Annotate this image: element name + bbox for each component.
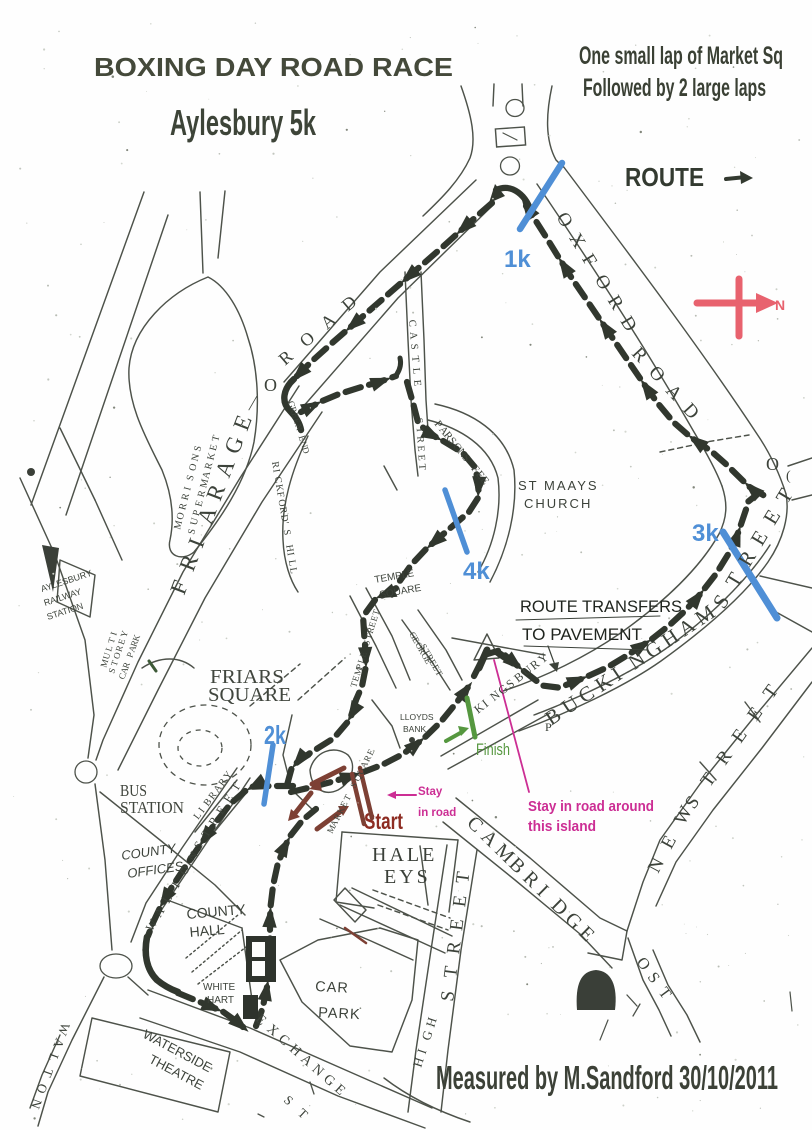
svg-text:Stay in road around: Stay in road around bbox=[528, 798, 654, 815]
svg-text:C: C bbox=[406, 319, 418, 327]
svg-text:A: A bbox=[407, 331, 419, 340]
svg-text:ROUTE TRANSFERS: ROUTE TRANSFERS bbox=[520, 597, 682, 616]
svg-text:O: O bbox=[264, 375, 277, 395]
svg-text:HALL: HALL bbox=[189, 921, 225, 940]
svg-text:SQUARE: SQUARE bbox=[208, 684, 291, 706]
svg-text:this island: this island bbox=[528, 818, 596, 835]
svg-text:O: O bbox=[766, 454, 779, 474]
svg-text:in road: in road bbox=[418, 807, 456, 819]
svg-text:Measured by M.Sandford 30/10/2: Measured by M.Sandford 30/10/2011 bbox=[436, 1059, 778, 1096]
svg-text:Followed by 2 large laps: Followed by 2 large laps bbox=[583, 74, 766, 102]
svg-text:CAR: CAR bbox=[315, 979, 349, 997]
svg-text:Finish: Finish bbox=[476, 740, 510, 759]
svg-text:WHITE: WHITE bbox=[203, 982, 236, 993]
svg-text:E: E bbox=[415, 445, 426, 452]
svg-text:N: N bbox=[775, 297, 785, 313]
svg-text:Aylesbury 5k: Aylesbury 5k bbox=[170, 102, 317, 143]
svg-text:PARK: PARK bbox=[318, 1005, 361, 1023]
svg-text:ROUTE: ROUTE bbox=[625, 162, 704, 192]
svg-text:3k: 3k bbox=[692, 520, 719, 547]
svg-text:T: T bbox=[414, 427, 425, 434]
svg-text:One small lap of Market Sq: One small lap of Market Sq bbox=[579, 42, 783, 70]
svg-text:LLOYDS: LLOYDS bbox=[400, 712, 434, 722]
svg-text:R: R bbox=[414, 436, 425, 444]
svg-text:STATION: STATION bbox=[120, 798, 184, 817]
svg-text:EYS: EYS bbox=[384, 866, 431, 888]
svg-text:E: E bbox=[415, 454, 426, 461]
svg-text:4k: 4k bbox=[463, 558, 490, 585]
svg-text:S: S bbox=[413, 417, 424, 423]
svg-text:HART: HART bbox=[207, 995, 234, 1006]
svg-text:BOXING DAY ROAD RACE: BOXING DAY ROAD RACE bbox=[94, 52, 453, 82]
svg-text:BANK: BANK bbox=[403, 724, 426, 734]
svg-text:HALE: HALE bbox=[372, 844, 437, 866]
svg-text:S: S bbox=[408, 343, 419, 350]
svg-text:2k: 2k bbox=[264, 720, 286, 750]
svg-text:(: ( bbox=[786, 469, 791, 484]
svg-text:E: E bbox=[411, 379, 422, 386]
svg-text:Stay: Stay bbox=[418, 786, 443, 798]
svg-text:T: T bbox=[416, 463, 427, 470]
svg-text:TO PAVEMENT: TO PAVEMENT bbox=[522, 625, 642, 644]
svg-text:ST MAAYS: ST MAAYS bbox=[518, 478, 599, 493]
svg-text:1k: 1k bbox=[504, 246, 531, 273]
svg-text:L: L bbox=[410, 367, 421, 374]
svg-text:CHURCH: CHURCH bbox=[524, 496, 592, 511]
